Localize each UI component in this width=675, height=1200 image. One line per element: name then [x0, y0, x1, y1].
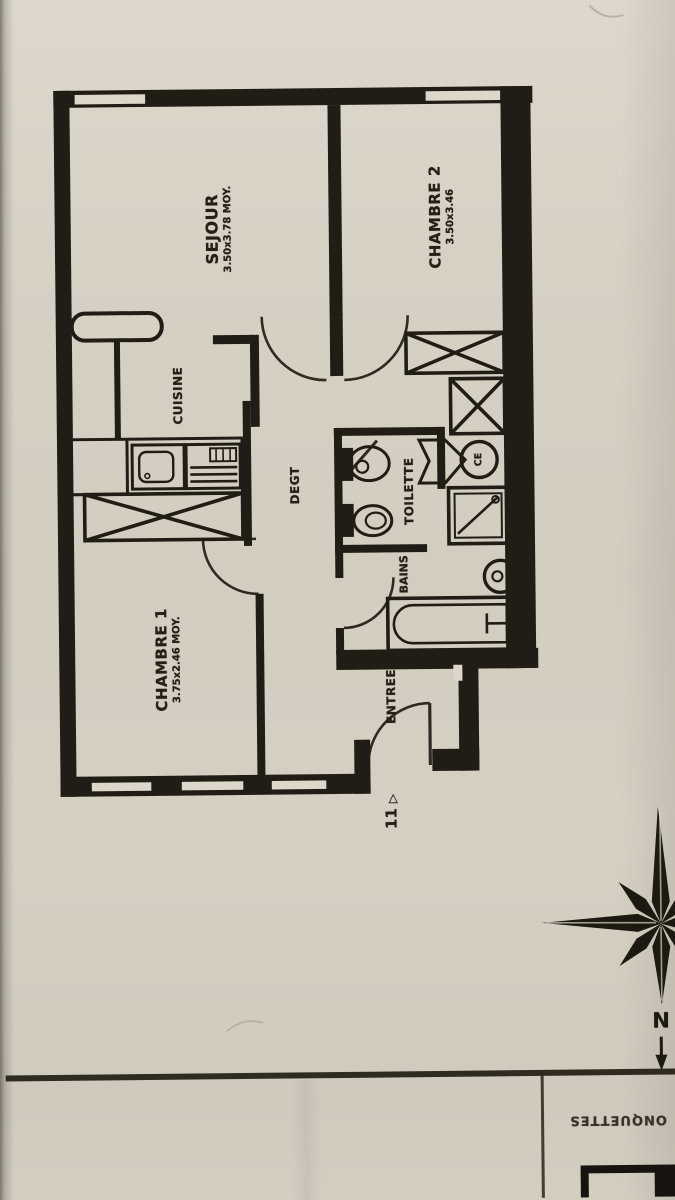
closet-x-icon: [450, 378, 505, 434]
window-sejour: [73, 93, 146, 106]
window-chambre1-right: [181, 780, 245, 792]
kitchen-fixtures: [67, 438, 243, 495]
room-dims: 3.50x3.78 MOY.: [222, 186, 235, 273]
water-heater-label: CE: [473, 453, 485, 467]
room-name: CUISINE: [171, 367, 187, 425]
room-label-toilette: TOILETTE: [402, 457, 418, 525]
sliding-partition-cuisine: [72, 313, 162, 341]
door-arc-chambre1: [203, 539, 259, 595]
title-block-text: ONQUETTES: [569, 1110, 667, 1127]
bathtub-icon: [388, 597, 517, 650]
shower-icon: [448, 487, 508, 544]
sink-icon: [132, 445, 184, 490]
wc-icon: [341, 503, 392, 537]
room-name: CHAMBRE 1: [152, 608, 172, 712]
room-name: SEJOUR: [202, 186, 223, 273]
door-number: 11: [382, 808, 400, 829]
north-needle: [655, 1037, 667, 1071]
paper-creases: [216, 5, 634, 1031]
paper-crease-shadow: [291, 1080, 322, 1200]
room-name: BAINS: [397, 555, 411, 593]
title-block-logo: [585, 1168, 675, 1200]
room-name: TOILETTE: [402, 457, 418, 525]
water-heater-text: CE: [473, 453, 484, 467]
window-chambre2: [424, 89, 501, 102]
scanned-floor-plan-page: SEJOUR 3.50x3.78 MOY. CHAMBRE 2 3.50x3.4…: [0, 0, 675, 1200]
cooktop-icon: [186, 444, 240, 489]
floor-plan-drawing: [0, 0, 675, 1200]
window-degagement: [271, 779, 328, 791]
door-arc-sejour: [262, 316, 327, 381]
door-arc-chambre2: [344, 315, 409, 380]
room-label-degagement: DEGT: [288, 466, 303, 504]
compass-north-label: N: [652, 1007, 670, 1033]
entrance-door-mark: 11▷: [382, 794, 401, 829]
title-text: ONQUETTES: [569, 1112, 667, 1128]
room-label-chambre2: CHAMBRE 2 3.50x3.46: [425, 165, 457, 269]
room-dims: 3.75x2.46 MOY.: [171, 608, 185, 712]
north-letter: N: [652, 1008, 670, 1032]
room-label-chambre1: CHAMBRE 1 3.75x2.46 MOY.: [152, 608, 184, 712]
washbasin-icon: [340, 446, 389, 481]
room-name: DEGT: [288, 466, 303, 504]
closet-x-icon: [85, 493, 243, 541]
room-dims: 3.50x3.46: [444, 165, 458, 269]
door-arrow-icon: ▷: [385, 794, 399, 803]
window-chambre1-left: [91, 781, 153, 793]
room-label-cuisine: CUISINE: [171, 367, 187, 425]
water-heater-icon: [419, 439, 497, 483]
room-label-sejour: SEJOUR 3.50x3.78 MOY.: [202, 186, 235, 273]
door-leaf-entree: [430, 703, 431, 765]
room-name: ENTREE: [384, 669, 400, 724]
plan-sheet: SEJOUR 3.50x3.78 MOY. CHAMBRE 2 3.50x3.4…: [0, 0, 675, 1200]
window-entree-side: [453, 665, 462, 681]
room-name: CHAMBRE 2: [425, 165, 445, 269]
room-label-bains: BAINS: [397, 555, 411, 593]
room-label-entree: ENTREE: [384, 669, 400, 724]
closet-x-icon: [406, 332, 504, 373]
title-block-lines: [6, 1068, 675, 1200]
